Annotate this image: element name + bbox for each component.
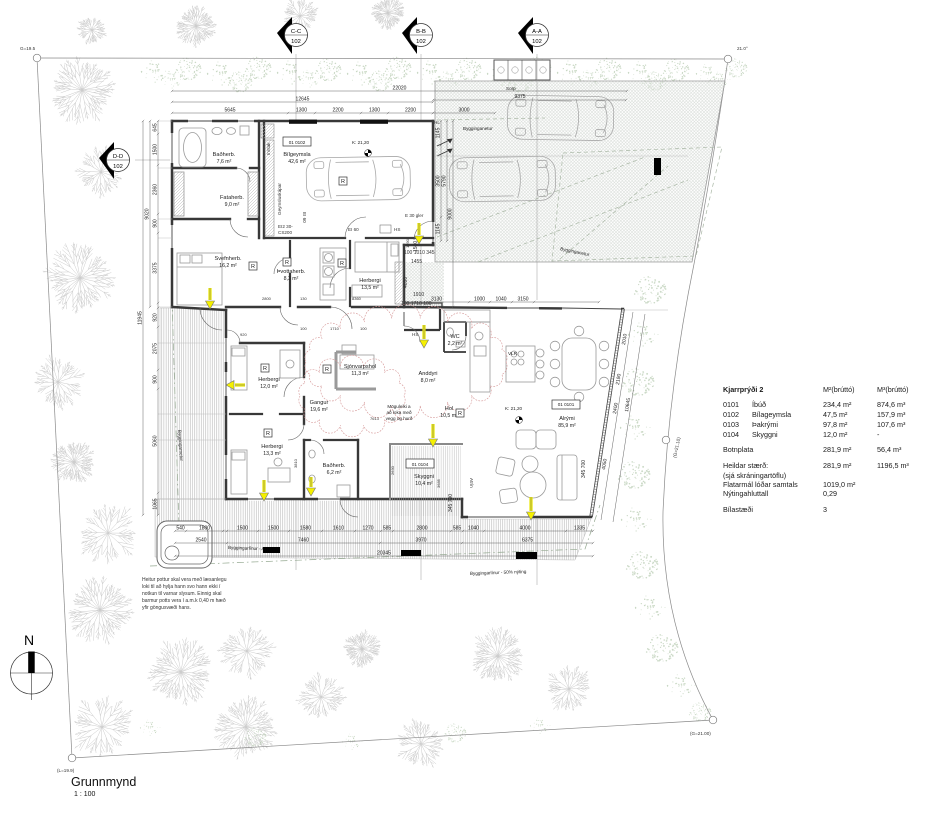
svg-text:Heitur pottur skal vera með læ: Heitur pottur skal vera með læsanlegu [142, 576, 227, 583]
svg-text:1040: 1040 [495, 297, 506, 303]
svg-text:VLR: VLR [508, 351, 518, 356]
svg-text:4000: 4000 [519, 526, 530, 532]
svg-text:Bílastæði: Bílastæði [723, 505, 753, 514]
svg-text:EI 60: EI 60 [348, 227, 359, 232]
svg-text:2,2 m²: 2,2 m² [448, 341, 463, 347]
svg-text:12,0 m²: 12,0 m² [260, 384, 278, 390]
svg-text:HS: HS [394, 227, 400, 232]
svg-text:920: 920 [153, 313, 159, 322]
svg-text:56,4 m³: 56,4 m³ [877, 445, 902, 454]
svg-text:19,6 m²: 19,6 m² [310, 407, 328, 413]
svg-text:1455: 1455 [411, 259, 422, 265]
svg-text:Svefnherb.: Svefnherb. [214, 256, 241, 262]
svg-text:að loka með: að loka með [386, 409, 411, 415]
svg-text:E 30 gler: E 30 gler [405, 213, 424, 218]
svg-text:1040: 1040 [468, 526, 479, 532]
svg-text:Möguleiki a: Möguleiki a [387, 404, 411, 409]
svg-text:vegg og hurð: vegg og hurð [386, 415, 413, 421]
svg-text:3130: 3130 [431, 297, 442, 303]
svg-text:9,0 m²: 9,0 m² [225, 202, 240, 208]
svg-text:Hol: Hol [445, 406, 453, 412]
svg-text:0103: 0103 [723, 420, 739, 429]
svg-text:20345: 20345 [377, 551, 391, 557]
svg-text:Sorp: Sorp [506, 86, 516, 91]
svg-text:notkun til varnar slysum. Einn: notkun til varnar slysum. Einnig skal [142, 591, 221, 597]
svg-text:R: R [341, 179, 345, 185]
svg-text:Skyggni: Skyggni [414, 474, 434, 480]
svg-text:3810: 3810 [293, 458, 298, 468]
svg-text:1145: 1145 [436, 223, 442, 234]
svg-text:Alrými: Alrými [559, 416, 575, 422]
svg-text:3000: 3000 [458, 108, 469, 114]
svg-text:Geymsluskápar: Geymsluskápar [277, 183, 282, 215]
svg-text:920: 920 [240, 332, 247, 337]
svg-text:Heildar stærð:: Heildar stærð: [723, 461, 768, 470]
svg-text:3375: 3375 [153, 262, 159, 273]
svg-text:21.0°: 21.0° [737, 46, 748, 51]
svg-text:0101: 0101 [723, 400, 739, 409]
svg-text:345 700: 345 700 [448, 494, 454, 512]
svg-text:(L=19.9): (L=19.9) [57, 768, 75, 773]
svg-text:2800: 2800 [416, 526, 427, 532]
svg-text:12645: 12645 [296, 97, 310, 103]
svg-text:8,3 m²: 8,3 m² [284, 276, 299, 282]
svg-text:1500: 1500 [268, 526, 279, 532]
svg-text:yfir göngusvæði hans.: yfir göngusvæði hans. [142, 604, 191, 611]
svg-text:234,4 m²: 234,4 m² [823, 400, 852, 409]
svg-text:345 700: 345 700 [581, 460, 587, 478]
svg-text:11945: 11945 [138, 311, 144, 325]
svg-text:1610: 1610 [333, 526, 344, 532]
svg-text:01 0101: 01 0101 [558, 402, 575, 407]
svg-text:Grunnmynd: Grunnmynd [71, 775, 136, 789]
svg-text:3685: 3685 [436, 478, 441, 488]
svg-text:1300: 1300 [296, 108, 307, 114]
svg-text:1300: 1300 [369, 108, 380, 114]
svg-text:8,0 m²: 8,0 m² [421, 378, 436, 384]
svg-text:1019,0 m²: 1019,0 m² [823, 480, 856, 489]
svg-text:(G=21.00): (G=21.00) [690, 731, 711, 736]
svg-text:0104: 0104 [723, 430, 739, 439]
svg-text:102: 102 [291, 39, 301, 45]
svg-text:10,4 m²: 10,4 m² [415, 481, 433, 487]
svg-text:102: 102 [416, 39, 426, 45]
svg-text:Fataherb.: Fataherb. [220, 195, 244, 201]
svg-text:Bílageymsla: Bílageymsla [752, 410, 791, 419]
svg-text:10,5 m²: 10,5 m² [440, 413, 458, 419]
svg-text:M³(brúttó): M³(brúttó) [877, 385, 909, 394]
svg-text:Gangur: Gangur [310, 400, 329, 406]
svg-text:Anddyri: Anddyri [419, 371, 438, 377]
svg-text:Bygginganetur: Bygginganetur [463, 126, 493, 131]
svg-text:107,6 m³: 107,6 m³ [877, 420, 906, 429]
svg-text:1196,5 m³: 1196,5 m³ [877, 461, 909, 470]
svg-text:R: R [458, 411, 462, 417]
svg-text:645: 645 [153, 123, 159, 132]
svg-text:Inntak: Inntak [266, 142, 271, 155]
svg-text:2540: 2540 [195, 538, 206, 544]
svg-text:100: 100 [360, 326, 367, 331]
svg-text:Kjarrprýði 2: Kjarrprýði 2 [723, 385, 763, 394]
svg-text:47,5 m²: 47,5 m² [823, 410, 848, 419]
svg-text:N: N [24, 632, 34, 648]
svg-text:1065: 1065 [153, 498, 159, 509]
svg-text:2200: 2200 [332, 108, 343, 114]
svg-text:1145: 1145 [436, 127, 442, 138]
svg-text:1335: 1335 [574, 526, 585, 532]
svg-text:1910: 1910 [413, 292, 424, 298]
svg-text:Flatarmál lóðar samtals: Flatarmál lóðar samtals [723, 480, 798, 489]
svg-text:R: R [285, 260, 289, 266]
svg-text:Bílgeymsla: Bílgeymsla [283, 152, 311, 158]
svg-text:100: 100 [300, 326, 307, 331]
svg-text:1580: 1580 [300, 526, 311, 532]
svg-text:4090: 4090 [403, 277, 409, 288]
svg-text:3970: 3970 [415, 538, 426, 544]
svg-text:HL: HL [434, 120, 440, 125]
svg-text:C-C: C-C [291, 29, 301, 35]
svg-text:9375: 9375 [514, 94, 525, 100]
svg-text:0102: 0102 [723, 410, 739, 419]
svg-text:12,0 m²: 12,0 m² [823, 430, 848, 439]
svg-text:13,5 m²: 13,5 m² [361, 285, 379, 291]
svg-text:R: R [325, 367, 329, 373]
svg-text:Þvottaherb.: Þvottaherb. [277, 269, 306, 275]
svg-text:2800: 2800 [262, 296, 272, 301]
svg-text:585: 585 [383, 526, 392, 532]
svg-text:2630: 2630 [390, 465, 395, 475]
svg-text:Skyggni: Skyggni [752, 430, 778, 439]
svg-text:5790: 5790 [442, 175, 448, 186]
svg-text:100 1010 345: 100 1010 345 [404, 250, 435, 256]
svg-text:7,6 m²: 7,6 m² [217, 159, 232, 165]
svg-text:barmur potts vera í a.m.k 0,40: barmur potts vera í a.m.k 0,40 m hæð [142, 597, 226, 604]
svg-text:97,8 m²: 97,8 m² [823, 420, 848, 429]
svg-text:Atrín: Atrín [469, 478, 474, 488]
svg-text:5060: 5060 [153, 435, 159, 446]
svg-text:8360: 8360 [352, 296, 362, 301]
svg-text:K: 21,20: K: 21,20 [352, 140, 370, 145]
svg-text:7613: 7613 [370, 416, 380, 421]
svg-text:2360: 2360 [153, 184, 159, 195]
svg-text:K: 21,20: K: 21,20 [505, 406, 523, 411]
svg-text:CS200: CS200 [278, 230, 292, 235]
svg-text:100 1710 100: 100 1710 100 [401, 301, 432, 307]
svg-text:Íbúð: Íbúð [752, 400, 766, 409]
svg-text:HS: HS [412, 332, 418, 337]
svg-text:585: 585 [453, 526, 462, 532]
svg-text:900: 900 [153, 219, 159, 228]
svg-text:1590: 1590 [405, 238, 410, 248]
svg-text:EI2 30-: EI2 30- [278, 224, 293, 229]
svg-text:R: R [251, 264, 255, 270]
svg-text:900: 900 [153, 375, 159, 384]
svg-text:Nýtingahluttall: Nýtingahluttall [723, 489, 769, 498]
svg-text:3150: 3150 [517, 297, 528, 303]
svg-text:22020: 22020 [393, 86, 407, 92]
svg-text:01 0102: 01 0102 [289, 140, 306, 145]
svg-text:1500: 1500 [413, 241, 419, 252]
svg-text:R: R [340, 261, 344, 267]
svg-text:9000: 9000 [448, 208, 454, 219]
svg-text:R: R [266, 431, 270, 437]
svg-text:7460: 7460 [298, 538, 309, 544]
svg-text:102: 102 [532, 39, 542, 45]
svg-text:1500: 1500 [237, 526, 248, 532]
svg-text:130: 130 [300, 296, 307, 301]
svg-text:3: 3 [823, 505, 827, 514]
svg-text:85,9 m²: 85,9 m² [558, 423, 576, 429]
svg-text:EI 60: EI 60 [302, 212, 307, 223]
svg-text:1500: 1500 [153, 144, 159, 155]
svg-text:13,3 m²: 13,3 m² [263, 451, 281, 457]
svg-text:01 0104: 01 0104 [412, 462, 429, 467]
svg-text:281,9 m²: 281,9 m² [823, 445, 852, 454]
svg-text:Herbergi: Herbergi [258, 377, 279, 383]
svg-text:5645: 5645 [224, 108, 235, 114]
svg-text:Baðherb.: Baðherb. [213, 151, 236, 158]
svg-text:1000: 1000 [474, 297, 485, 303]
svg-text:Þakrými: Þakrými [752, 420, 778, 429]
svg-text:1270: 1270 [362, 526, 373, 532]
svg-text:M²(brúttó): M²(brúttó) [823, 385, 855, 394]
svg-text:Herbergi: Herbergi [261, 444, 282, 450]
svg-text:1800: 1800 [199, 526, 210, 532]
svg-text:102: 102 [113, 164, 123, 170]
svg-text:540: 540 [176, 526, 185, 532]
svg-text:2075: 2075 [153, 343, 159, 354]
svg-text:G=19.5: G=19.5 [20, 46, 36, 51]
svg-text:1 : 100: 1 : 100 [74, 791, 96, 798]
svg-text:A-A: A-A [532, 29, 542, 35]
svg-text:16,2 m²: 16,2 m² [219, 263, 237, 269]
svg-text:loki til að hylja hann svo han: loki til að hylja hann svo hann ekki í [142, 583, 221, 590]
svg-text:6375: 6375 [522, 538, 533, 544]
svg-text:D-D: D-D [113, 154, 123, 160]
svg-text:42,6 m²: 42,6 m² [288, 159, 306, 165]
svg-text:B-B: B-B [416, 29, 426, 35]
svg-text:157,9 m³: 157,9 m³ [877, 410, 906, 419]
svg-text:Herbergi: Herbergi [359, 278, 380, 284]
svg-text:WC: WC [450, 334, 459, 340]
svg-text:(sjá skráningartöflu): (sjá skráningartöflu) [723, 471, 786, 480]
svg-text:281,9 m²: 281,9 m² [823, 461, 852, 470]
svg-text:11,3 m²: 11,3 m² [351, 371, 368, 377]
svg-text:Baðherb.: Baðherb. [323, 462, 346, 469]
svg-text:1710: 1710 [330, 326, 340, 331]
svg-text:R: R [263, 366, 267, 372]
svg-text:6,2 m²: 6,2 m² [327, 470, 342, 476]
svg-text:2200: 2200 [405, 108, 416, 114]
svg-text:0,29: 0,29 [823, 489, 837, 498]
svg-text:874,6 m³: 874,6 m³ [877, 400, 906, 409]
svg-text:Sjónvarpshol: Sjónvarpshol [344, 364, 376, 370]
svg-text:Botnplata: Botnplata [723, 445, 753, 454]
svg-text:9020: 9020 [145, 208, 151, 219]
